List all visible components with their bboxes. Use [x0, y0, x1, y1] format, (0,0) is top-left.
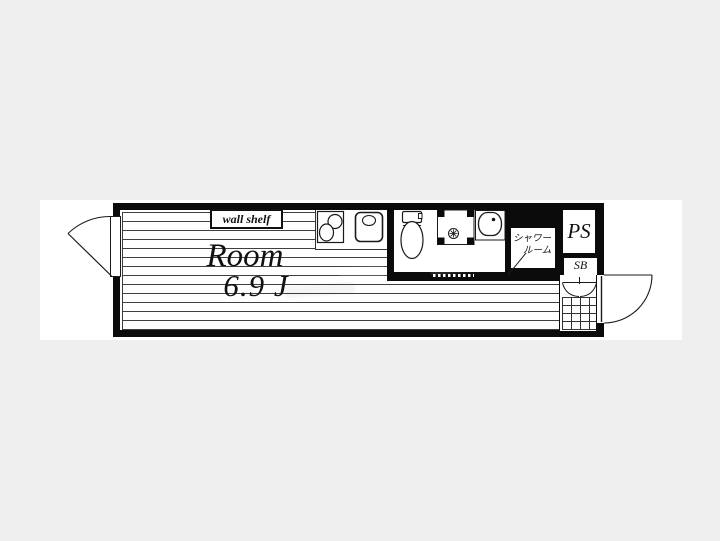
washroom-sliding-door-icon — [433, 274, 474, 277]
genkan-tiles-icon — [562, 297, 596, 330]
wall-right-corner — [597, 323, 604, 331]
washroom-area — [394, 210, 505, 272]
wall-filler — [505, 272, 559, 281]
shower-room-label-line2: ルーム — [513, 245, 555, 257]
wall-top — [113, 203, 604, 210]
wall-left-bottom — [113, 276, 120, 330]
shoe-box-label: SB — [564, 257, 597, 274]
wall-shelf-label: wall shelf — [223, 212, 271, 227]
wall-bottom — [113, 330, 604, 337]
room-label: Room 6.9 J — [150, 240, 340, 301]
wall-left-top — [113, 203, 120, 217]
floorplan-image: wall shelf Room 6.9 J PS SB シャワー ルーム — [0, 0, 720, 541]
room-size: 6.9 J — [150, 270, 340, 301]
wall-shelf-label-box: wall shelf — [210, 209, 283, 229]
shower-room-label: シャワー ルーム — [513, 233, 555, 257]
pipe-space-label: PS — [563, 210, 595, 253]
shower-room-label-line1: シャワー — [513, 233, 551, 244]
